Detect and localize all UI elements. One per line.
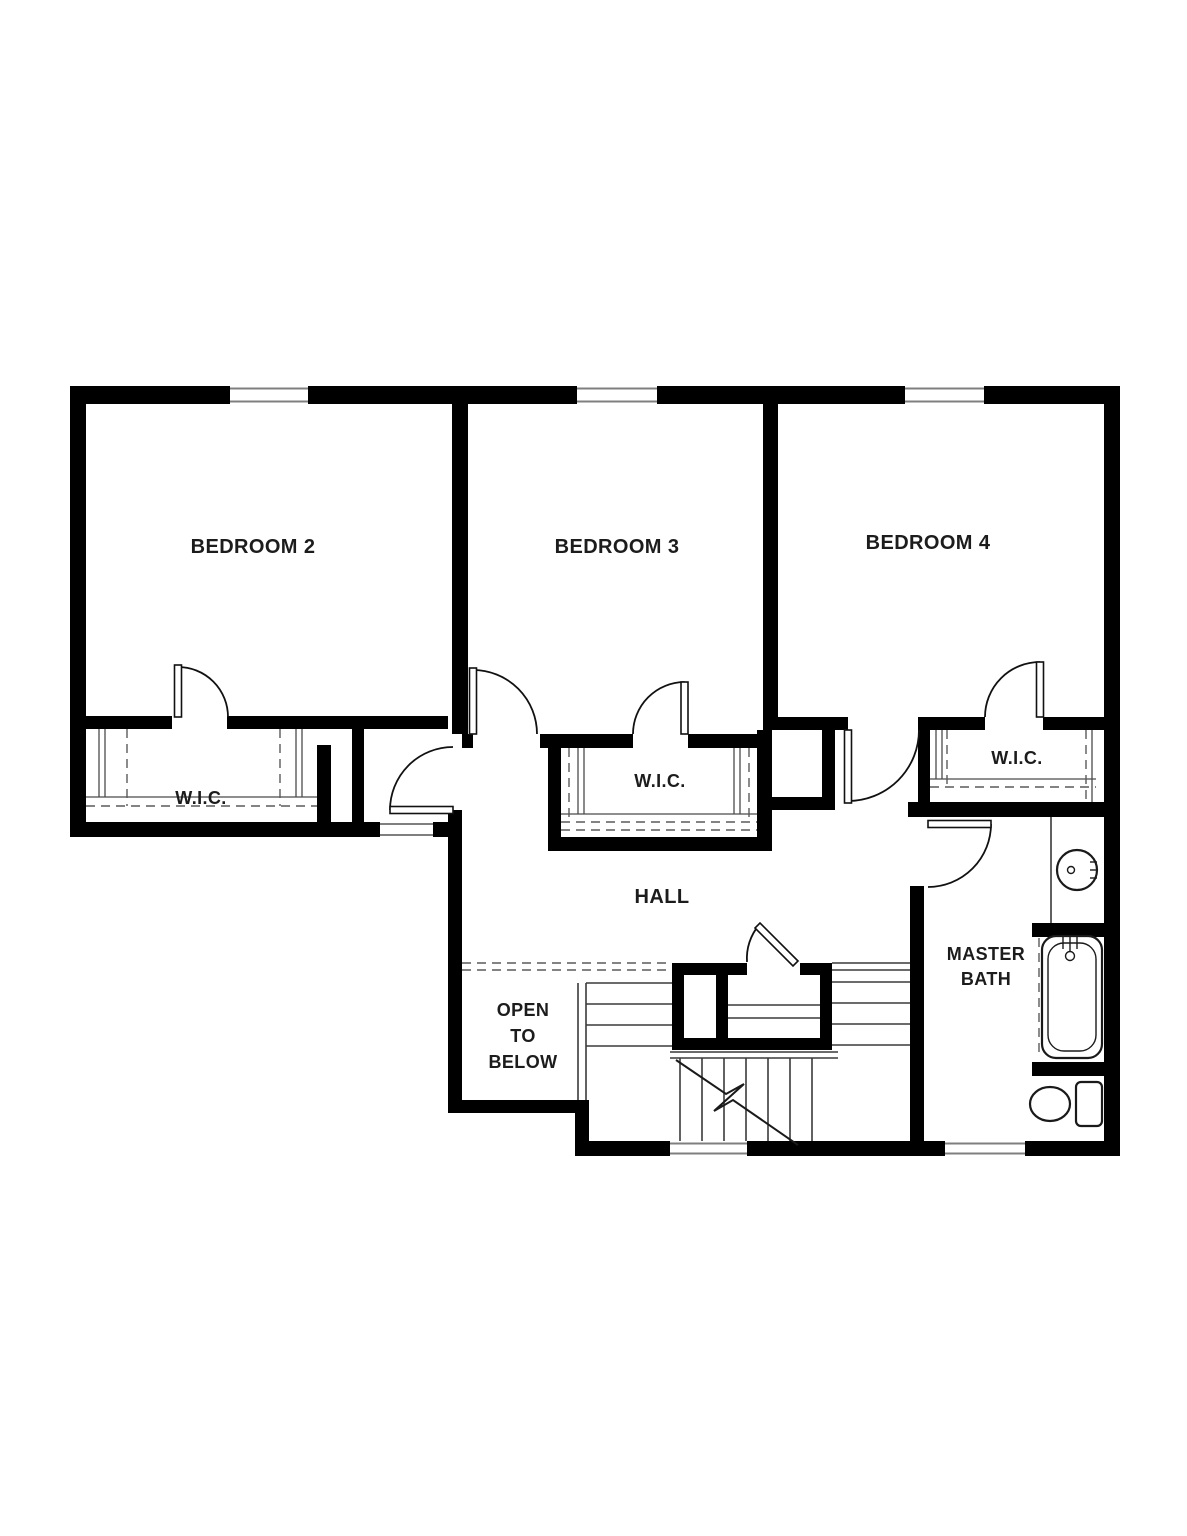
wall-bedroom4-bottom-right (1043, 717, 1104, 730)
master-bath-line2: BATH (961, 969, 1011, 989)
sink (1057, 850, 1098, 890)
wall-wic3-bottom (548, 837, 770, 851)
wall-masterbath-top (908, 802, 1104, 817)
wall-bedroom2-bottom-right (227, 716, 448, 729)
wic2-label: W.I.C. (175, 788, 226, 808)
window-bedroom3 (577, 386, 657, 404)
wall-bottom-exterior (575, 1141, 1120, 1156)
wic4-label: W.I.C. (991, 748, 1042, 768)
wall-linen-bottom (763, 797, 835, 810)
open-to-below-line3: BELOW (489, 1052, 558, 1072)
hall-label: HALL (635, 886, 690, 908)
wall-bedroom2-bottom-left (70, 716, 172, 729)
window-stair-bottom (670, 1141, 747, 1156)
bathtub (1039, 936, 1102, 1058)
open-to-below-line2: TO (510, 1026, 535, 1046)
master-bath-line1: MASTER (947, 944, 1025, 964)
wall-wic3-left (548, 734, 561, 851)
wall-stairbox-divider (716, 963, 728, 1050)
bedroom-2-label: BEDROOM 2 (191, 536, 316, 558)
wic3-label: W.I.C. (634, 771, 685, 791)
window-bedroom4 (905, 386, 984, 404)
opening-wic2-wall (380, 822, 433, 837)
floor-plan-drawing: BEDROOM 2 BEDROOM 3 BEDROOM 4 W.I.C. W.I… (0, 0, 1187, 1536)
wall-stairbox-right (820, 963, 832, 1050)
bedroom-4-label: BEDROOM 4 (866, 532, 991, 554)
window-bedroom2 (230, 386, 308, 404)
wall-stub-tub-toilet (1032, 1062, 1104, 1076)
wall-bedroom3-bottom-right (688, 734, 763, 748)
wall-masterbath-west (910, 886, 924, 1141)
wall-divider-br2-br3 (452, 404, 468, 734)
open-to-below-line1: OPEN (497, 1000, 550, 1020)
wall-divider-br3-br4 (763, 404, 778, 717)
wall-linen-right (822, 717, 835, 810)
wall-openbelow-connector (575, 1100, 589, 1156)
window-masterbath-bottom (945, 1141, 1025, 1156)
page-background (0, 0, 1187, 1536)
wall-wic2-bar-left (317, 745, 331, 822)
wall-stairbox-left (672, 963, 684, 1050)
bedroom-3-label: BEDROOM 3 (555, 536, 680, 558)
wall-left-exterior (70, 386, 86, 837)
wall-openbelow-bottom (448, 1100, 589, 1113)
wall-stairbox-bottom (672, 1038, 832, 1050)
wall-bedroom4-bottom-left (763, 717, 848, 730)
wall-right-exterior (1104, 386, 1120, 1156)
wall-hall-west (448, 810, 462, 1113)
wall-wic3-right (757, 730, 772, 851)
wall-wic4-left (918, 717, 930, 802)
wall-wic2-bar-right (352, 716, 364, 822)
floor-plan-page: BEDROOM 2 BEDROOM 3 BEDROOM 4 W.I.C. W.I… (0, 0, 1187, 1536)
wall-divider-br2-br3-foot (462, 734, 473, 748)
